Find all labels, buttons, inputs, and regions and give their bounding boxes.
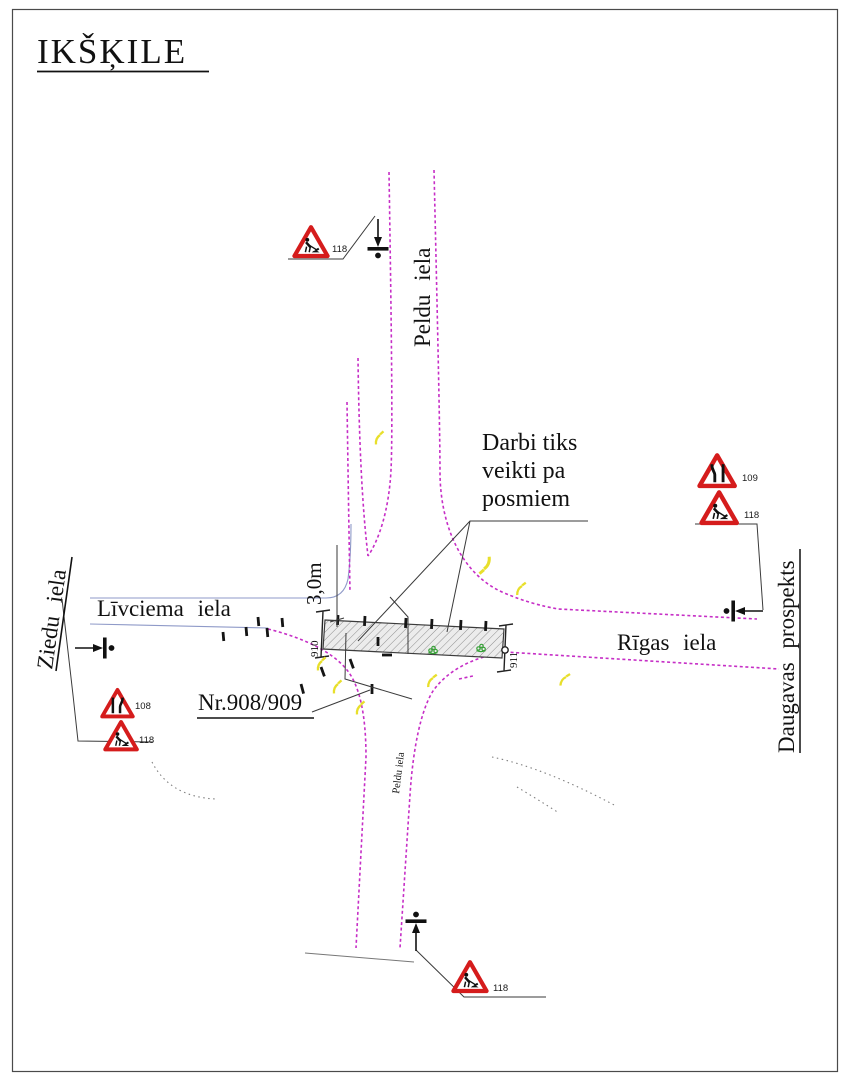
road-edge-peldu-north-left <box>368 172 392 556</box>
road-marking-icon <box>515 583 529 595</box>
road-marking-icon <box>373 431 387 444</box>
frame-border <box>13 10 838 1072</box>
street-label-peldu-north: Peldu iela <box>410 248 435 347</box>
city-title: IKŠĶILE <box>37 32 187 71</box>
dotted-contours <box>152 757 616 813</box>
station-label-left: 910 <box>309 640 321 657</box>
street-label-livciema: Līvciema iela <box>97 596 231 621</box>
road-edge-peldu-right-rigas-north <box>434 170 757 619</box>
road-marking-icon <box>559 674 572 686</box>
sign-post-icon-west <box>75 638 114 659</box>
warning-sign-west-108: 108 <box>102 690 151 716</box>
work-zone-hatch <box>323 620 504 658</box>
street-label-daugavas: Daugavas prospekts <box>774 560 799 753</box>
scheme-drawing: 118 108 118 109 118 118 IKŠĶILE Peldu ie… <box>0 0 851 1080</box>
warning-sign-east-118: 118 <box>702 492 760 523</box>
sign-number: 118 <box>139 735 154 746</box>
station-label-right: 911 <box>508 652 520 668</box>
warning-sign-north-118: 118 <box>294 227 347 256</box>
note-label-line1: Darbi tiks <box>482 430 577 456</box>
warning-sign-west-118: 118 <box>105 722 154 749</box>
road-edge-island-wedge <box>358 358 368 556</box>
sign-post-icon-south <box>406 912 427 951</box>
road-marking-icon <box>331 680 345 693</box>
ground-line <box>305 953 414 962</box>
roadworks-sign-icon <box>453 962 486 991</box>
sign-post-icon-north <box>368 219 389 258</box>
road-narrows-sign-icon <box>102 690 133 716</box>
street-label-rigas: Rīgas iela <box>617 630 716 655</box>
road-edge-peldu-south-left <box>268 629 366 948</box>
roadworks-sign-icon <box>294 227 327 256</box>
street-label-ziedu: Ziedu iela <box>32 568 71 671</box>
road-edge-peldu-south-right <box>400 653 500 948</box>
roadworks-sign-icon <box>105 722 137 749</box>
object-ref-label: Nr.908/909 <box>198 690 302 715</box>
dimension-label: 3,0m <box>302 562 326 605</box>
road-narrows-sign-icon <box>700 455 735 486</box>
warning-sign-east-109: 109 <box>700 455 758 486</box>
sign-number: 118 <box>744 510 759 521</box>
road-marking-icon <box>426 675 440 687</box>
road-edge-magenta <box>268 170 779 948</box>
sign-number: 109 <box>742 473 758 484</box>
warning-sign-south-118: 118 <box>453 962 508 994</box>
road-marking-icon <box>475 557 493 574</box>
sign-number: 118 <box>493 983 508 994</box>
street-label-peldu-south: Peldu iela <box>391 751 407 794</box>
road-marking-icon <box>354 701 368 714</box>
road-edge-dash <box>459 676 473 679</box>
note-label-line2: veikti pa <box>482 458 566 484</box>
traffic-scheme-canvas: 118 108 118 109 118 118 IKŠĶILE Peldu ie… <box>0 0 851 1080</box>
sign-number: 108 <box>135 701 151 712</box>
note-label-line3: posmiem <box>482 486 570 512</box>
dimension-line <box>330 545 344 627</box>
roadworks-sign-icon <box>702 492 737 523</box>
sign-number: 118 <box>332 244 347 255</box>
